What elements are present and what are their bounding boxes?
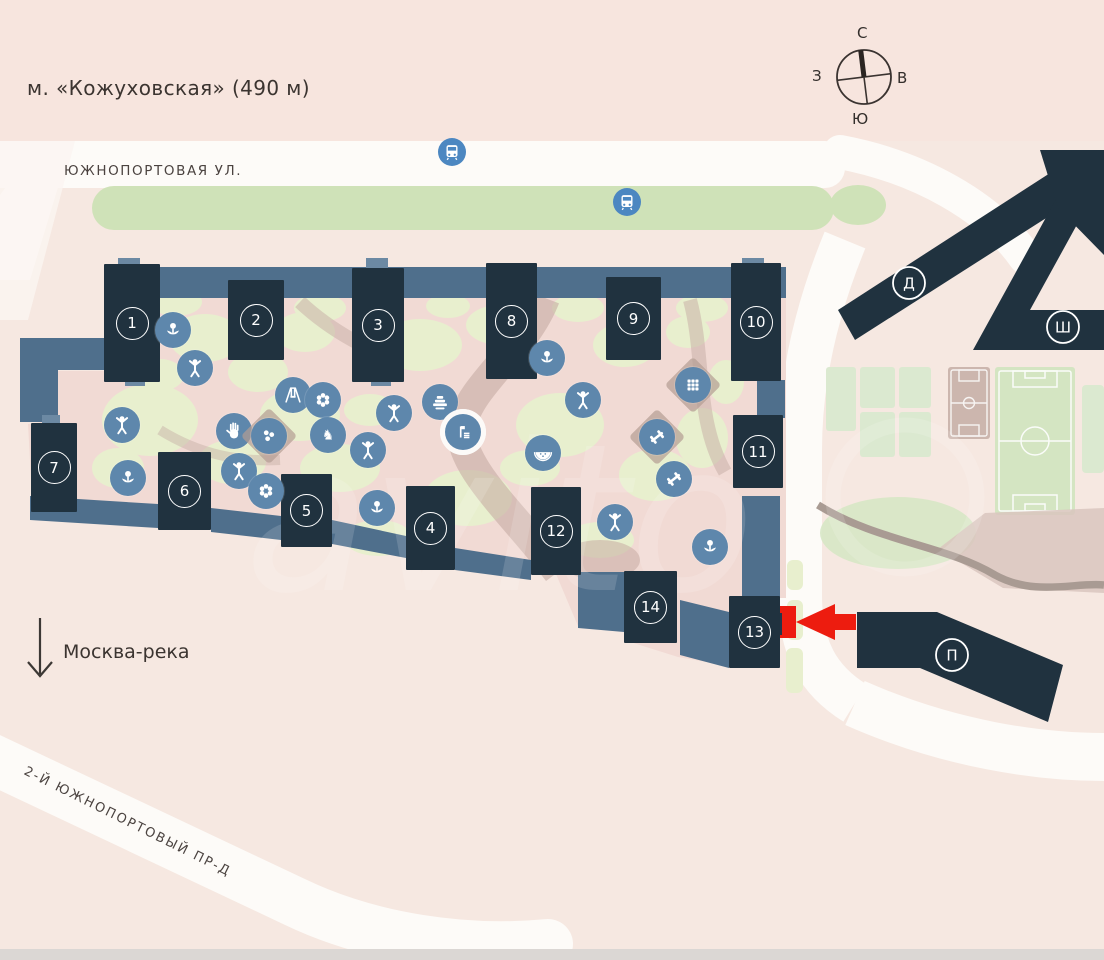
metro-label: м. «Кожуховская» (490 м)	[27, 76, 310, 100]
kids-playground-icon	[597, 504, 633, 540]
kids-playground-icon	[104, 407, 140, 443]
compass-north: С	[857, 24, 867, 42]
flower-bed-icon	[692, 529, 728, 565]
flower-bed-icon	[359, 490, 395, 526]
compass-east: В	[897, 69, 907, 87]
kids-playground-icon	[350, 432, 386, 468]
river-label: Москва-река	[63, 641, 190, 663]
chess-icon: ♞	[310, 417, 346, 453]
site-plan-map: ДШП аvito 1238910117654121413	[0, 0, 1104, 960]
amenity-icons: ♞	[0, 0, 1104, 960]
picnic-icon	[525, 435, 561, 471]
svg-text:♞: ♞	[322, 428, 334, 444]
bus-stop-icon	[613, 188, 641, 216]
flower-garden-icon	[248, 473, 284, 509]
kids-playground-icon	[376, 395, 412, 431]
compass-west: З	[812, 67, 822, 85]
street-label-top: ЮЖНОПОРТОВАЯ УЛ.	[64, 163, 242, 179]
bus-stop-icon	[438, 138, 466, 166]
flower-bed-icon	[110, 460, 146, 496]
compass-south: Ю	[852, 110, 868, 128]
pavilion-icon	[675, 367, 711, 403]
kids-playground-icon	[565, 382, 601, 418]
flower-bed-icon	[529, 340, 565, 376]
kids-playground-icon	[177, 350, 213, 386]
play-balls-icon	[251, 418, 287, 454]
flower-bed-icon	[155, 312, 191, 348]
fitness-icon	[639, 419, 675, 455]
flower-garden-icon	[305, 382, 341, 418]
pool-icon	[445, 414, 481, 450]
fitness-icon	[656, 461, 692, 497]
